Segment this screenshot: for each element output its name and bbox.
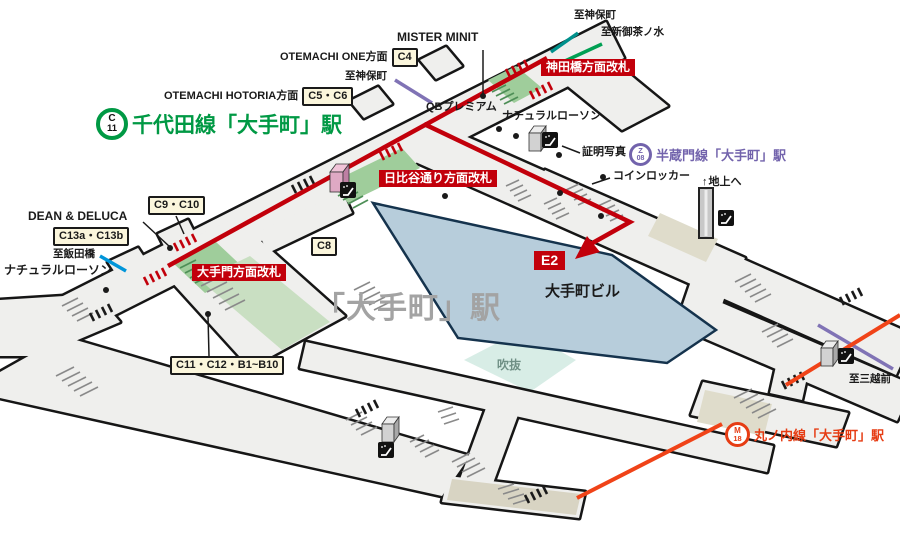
direction-mitsukoshimae: 至三越前 <box>849 373 891 385</box>
chiyoda-num: 11 <box>107 124 117 134</box>
otemachi-building-label: 大手町ビル <box>545 280 620 301</box>
hanzomon-line-title: Z 08 半蔵門線「大手町」駅 <box>629 143 786 166</box>
coin-locker-label: コインロッカー <box>613 170 690 183</box>
otemachi-hotoria-label: OTEMACHI HOTORIA方面 <box>164 90 298 103</box>
station-map-svg <box>0 0 900 537</box>
hanzomon-num: 08 <box>637 155 645 162</box>
chiyoda-title-text: 千代田線「大手町」駅 <box>132 109 342 139</box>
hibiya-gate-badge: 日比谷通り方面改札 <box>379 170 497 187</box>
kandabashi-gate-badge: 神田橋方面改札 <box>541 59 635 76</box>
shop-qb-premium: QBプレミアム <box>426 101 497 114</box>
direction-shin-ochanomizu: 至新御茶ノ水 <box>601 26 664 38</box>
otemachi-one-label: OTEMACHI ONE方面 <box>280 51 388 64</box>
elevator-3 <box>821 341 838 366</box>
shop-lawson-left: ナチュラルローソン <box>4 264 112 278</box>
exit-badge-c4: C4 <box>392 48 418 67</box>
escalator-icon-2 <box>542 132 558 148</box>
hanzomon-title-text: 半蔵門線「大手町」駅 <box>656 145 786 164</box>
exit-badge-c8: C8 <box>311 237 337 256</box>
hanzomon-line-jimbocho <box>395 80 432 103</box>
chiyoda-line-icon: C 11 <box>96 108 128 140</box>
direction-otemachi-hotoria: OTEMACHI HOTORIA方面 C5・C6 <box>164 87 353 106</box>
ground-text: 地上へ <box>709 176 742 189</box>
atrium-label: 吹抜 <box>497 356 521 373</box>
hanzomon-code: Z <box>638 147 643 155</box>
escalator-icon-1 <box>340 182 356 198</box>
up-arrow-icon: ↑ <box>702 176 708 189</box>
exit-badge-c11-c12-b: C11・C12・B1~B10 <box>170 356 284 375</box>
escalator-icon-4 <box>838 348 854 364</box>
station-name-watermark: 「大手町」駅 <box>315 283 501 327</box>
direction-jimbocho-north: 至神保町 <box>574 9 616 21</box>
shop-lawson-top: ナチュラルローソン <box>502 110 601 123</box>
hanzomon-line-icon: Z 08 <box>629 143 652 166</box>
exit-badge-c9-c10: C9・C10 <box>148 196 205 215</box>
shop-dean-deluca: DEAN & DELUCA <box>28 210 127 224</box>
to-ground-label: ↑ 地上へ <box>702 176 742 189</box>
exit-badge-c5-c6: C5・C6 <box>302 87 353 106</box>
chiyoda-line-title: C 11 千代田線「大手町」駅 <box>96 108 342 140</box>
otemon-gate-badge: 大手門方面改札 <box>192 264 286 281</box>
direction-otemachi-one: OTEMACHI ONE方面 C4 <box>280 48 418 67</box>
direction-jimbocho-west: 至神保町 <box>345 70 387 82</box>
shop-photo-booth: 証明写真 <box>582 146 626 159</box>
marunouchi-line-icon: M 18 <box>725 422 750 447</box>
direction-iidabashi: 至飯田橋 <box>53 248 95 260</box>
exit-badge-c13: C13a・C13b <box>53 227 129 246</box>
exit-badge-e2: E2 <box>534 251 565 270</box>
escalator-icon-5 <box>378 442 394 458</box>
marunouchi-line-title: M 18 丸ノ内線「大手町」駅 <box>725 422 884 447</box>
marunouchi-num: 18 <box>733 435 741 443</box>
ground-shaft <box>699 188 713 238</box>
marunouchi-title-text: 丸ノ内線「大手町」駅 <box>754 425 884 444</box>
escalator-icon-3 <box>718 210 734 226</box>
station-map: MISTER MINIT OTEMACHI ONE方面 C4 至神保町 OTEM… <box>0 0 900 537</box>
elevator-2 <box>382 417 399 442</box>
shop-mister-minit: MISTER MINIT <box>397 31 478 45</box>
